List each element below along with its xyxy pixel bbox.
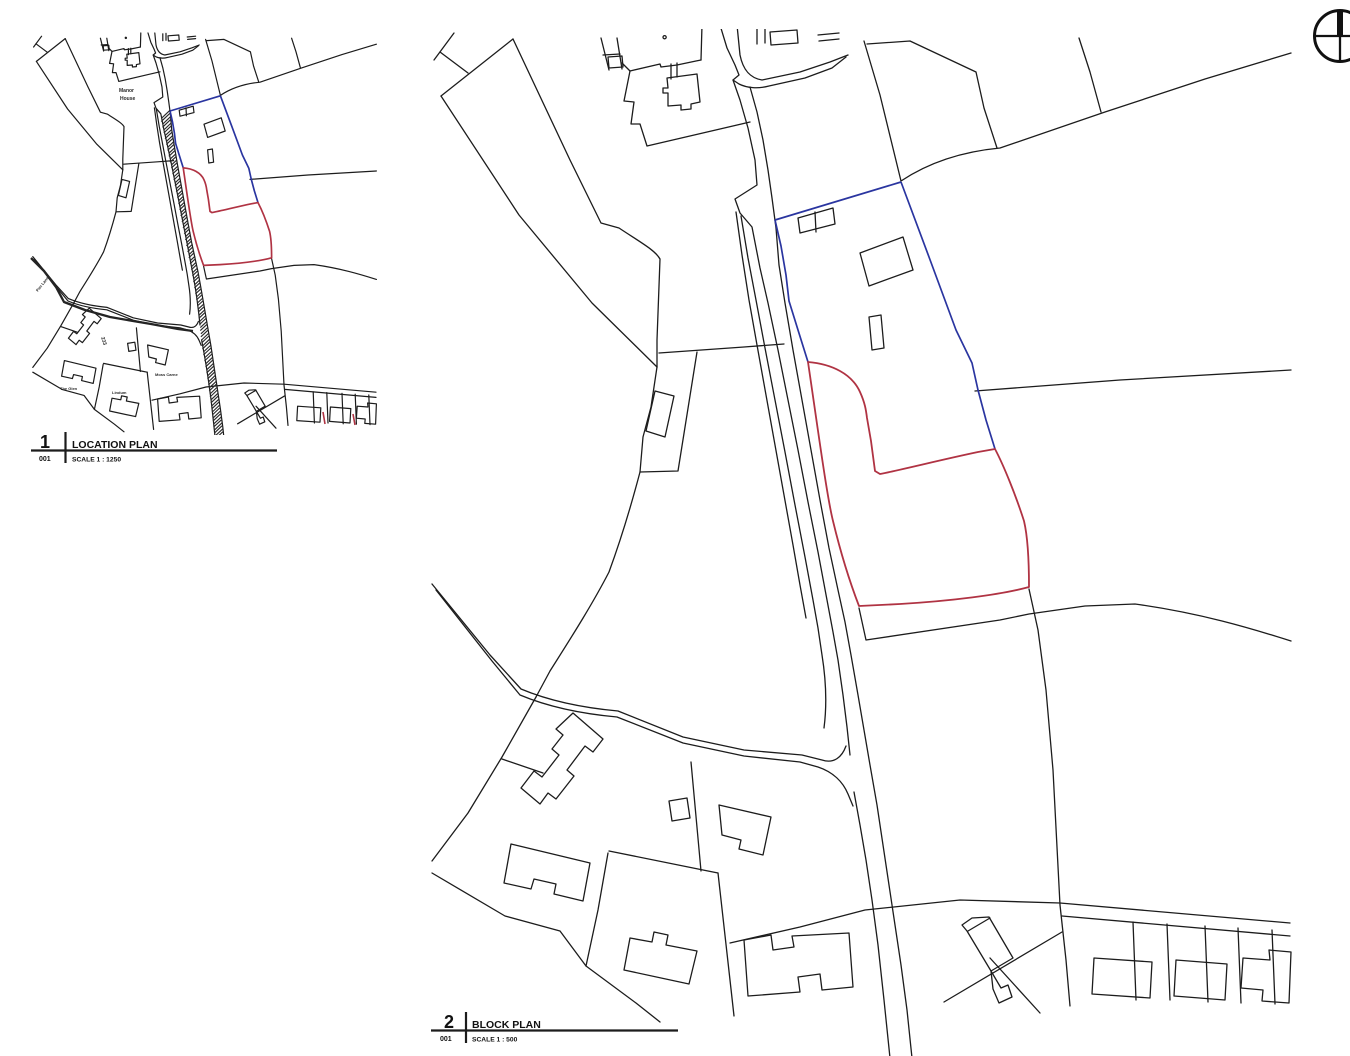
svg-text:001: 001 bbox=[440, 1036, 452, 1043]
svg-text:SCALE 1 : 500: SCALE 1 : 500 bbox=[472, 1037, 518, 1044]
svg-text:BLOCK PLAN: BLOCK PLAN bbox=[472, 1019, 541, 1031]
svg-text:LOCATION PLAN: LOCATION PLAN bbox=[72, 439, 158, 451]
svg-text:House: House bbox=[120, 96, 136, 102]
svg-text:SCALE 1 : 1250: SCALE 1 : 1250 bbox=[72, 457, 121, 464]
svg-text:Manor: Manor bbox=[119, 88, 134, 94]
svg-text:Lindum: Lindum bbox=[112, 390, 127, 395]
svg-text:1: 1 bbox=[40, 432, 50, 452]
svg-text:2: 2 bbox=[444, 1012, 454, 1032]
svg-text:The Glen: The Glen bbox=[60, 386, 78, 391]
svg-text:001: 001 bbox=[39, 456, 51, 463]
svg-text:Moss Carne: Moss Carne bbox=[155, 372, 178, 377]
